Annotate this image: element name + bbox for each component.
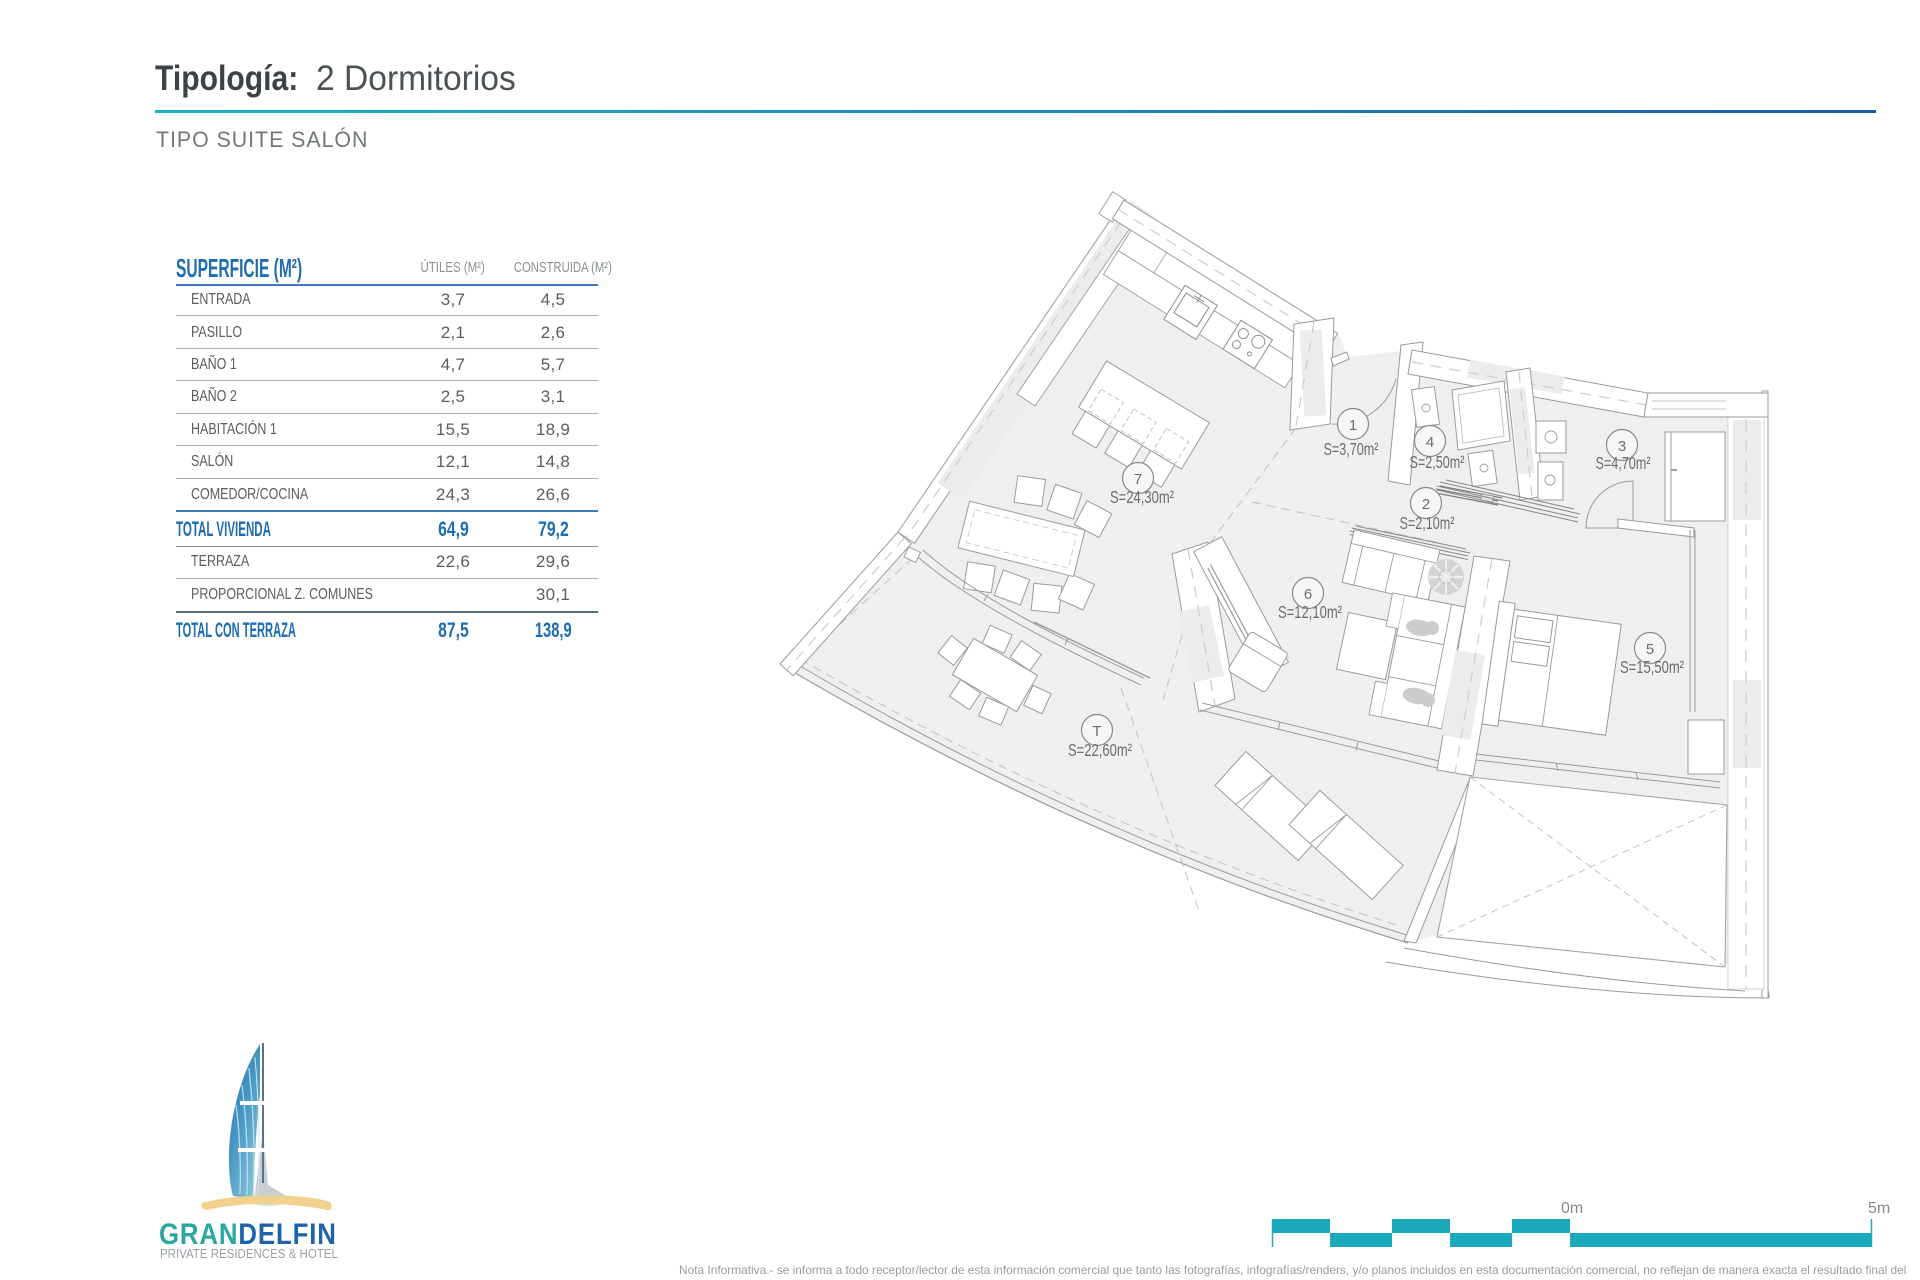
svg-text:6: 6 bbox=[1304, 586, 1312, 603]
svg-text:S=4,70m²: S=4,70m² bbox=[1596, 453, 1651, 473]
svg-text:4: 4 bbox=[1426, 434, 1434, 451]
svg-text:5m: 5m bbox=[1868, 1200, 1890, 1217]
svg-text:5: 5 bbox=[1646, 641, 1654, 658]
svg-text:S=12,10m²: S=12,10m² bbox=[1278, 602, 1342, 622]
svg-text:1: 1 bbox=[1349, 417, 1357, 434]
svg-text:T: T bbox=[1092, 723, 1101, 740]
svg-text:S=2,10m²: S=2,10m² bbox=[1400, 513, 1455, 533]
svg-text:S=15,50m²: S=15,50m² bbox=[1620, 657, 1684, 677]
svg-text:S=24,30m²: S=24,30m² bbox=[1110, 487, 1174, 507]
svg-text:S=3,70m²: S=3,70m² bbox=[1324, 439, 1379, 459]
svg-text:S=22,60m²: S=22,60m² bbox=[1068, 740, 1132, 760]
svg-text:S=2,50m²: S=2,50m² bbox=[1410, 452, 1465, 472]
svg-text:2: 2 bbox=[1422, 496, 1430, 513]
svg-text:7: 7 bbox=[1134, 471, 1142, 488]
svg-text:0m: 0m bbox=[1561, 1200, 1583, 1217]
